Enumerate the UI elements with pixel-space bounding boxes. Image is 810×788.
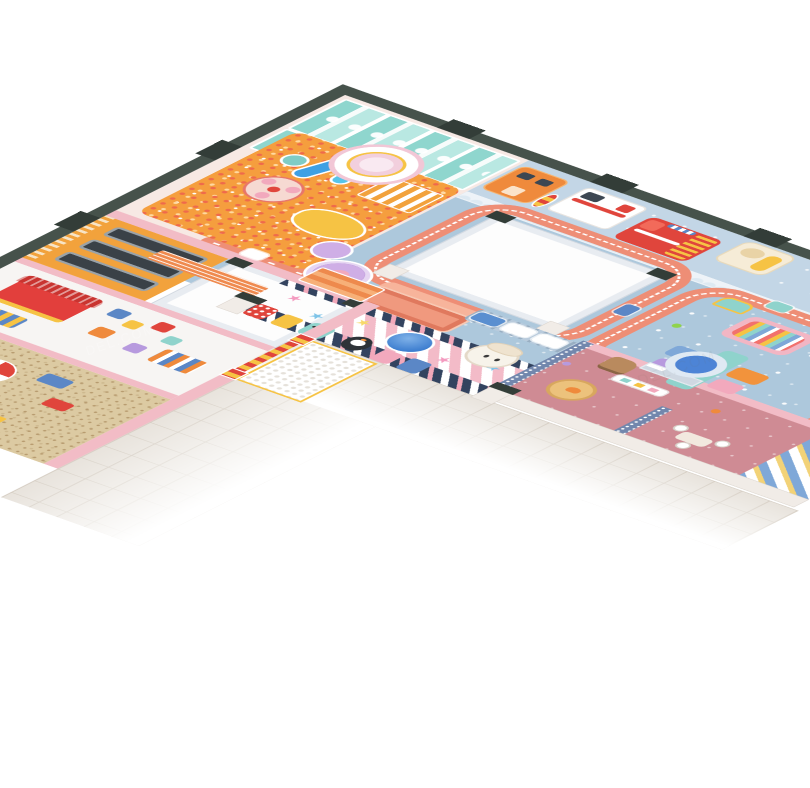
mushroom-eye [482, 354, 490, 358]
sand-toy [0, 415, 7, 423]
sand-table [40, 397, 76, 412]
foam-block [159, 335, 184, 346]
figure [672, 425, 689, 432]
fire-truck-stripe [633, 228, 681, 246]
clothes-item [647, 388, 660, 393]
toy-hat [564, 386, 584, 394]
brick-structure [146, 349, 209, 375]
umbrella-table [0, 354, 28, 387]
mushroom-eye [493, 358, 501, 362]
sand-table [35, 373, 75, 389]
clothes-item [619, 378, 632, 383]
bus-window [534, 178, 555, 187]
bus-window [515, 172, 536, 181]
bus-door [500, 185, 527, 196]
floor-plan: ★ ★ ★ ★ ★ [0, 95, 810, 788]
playground-render: { "scene": { "description": "Isometric 3… [0, 0, 810, 540]
foam-block [105, 308, 133, 320]
